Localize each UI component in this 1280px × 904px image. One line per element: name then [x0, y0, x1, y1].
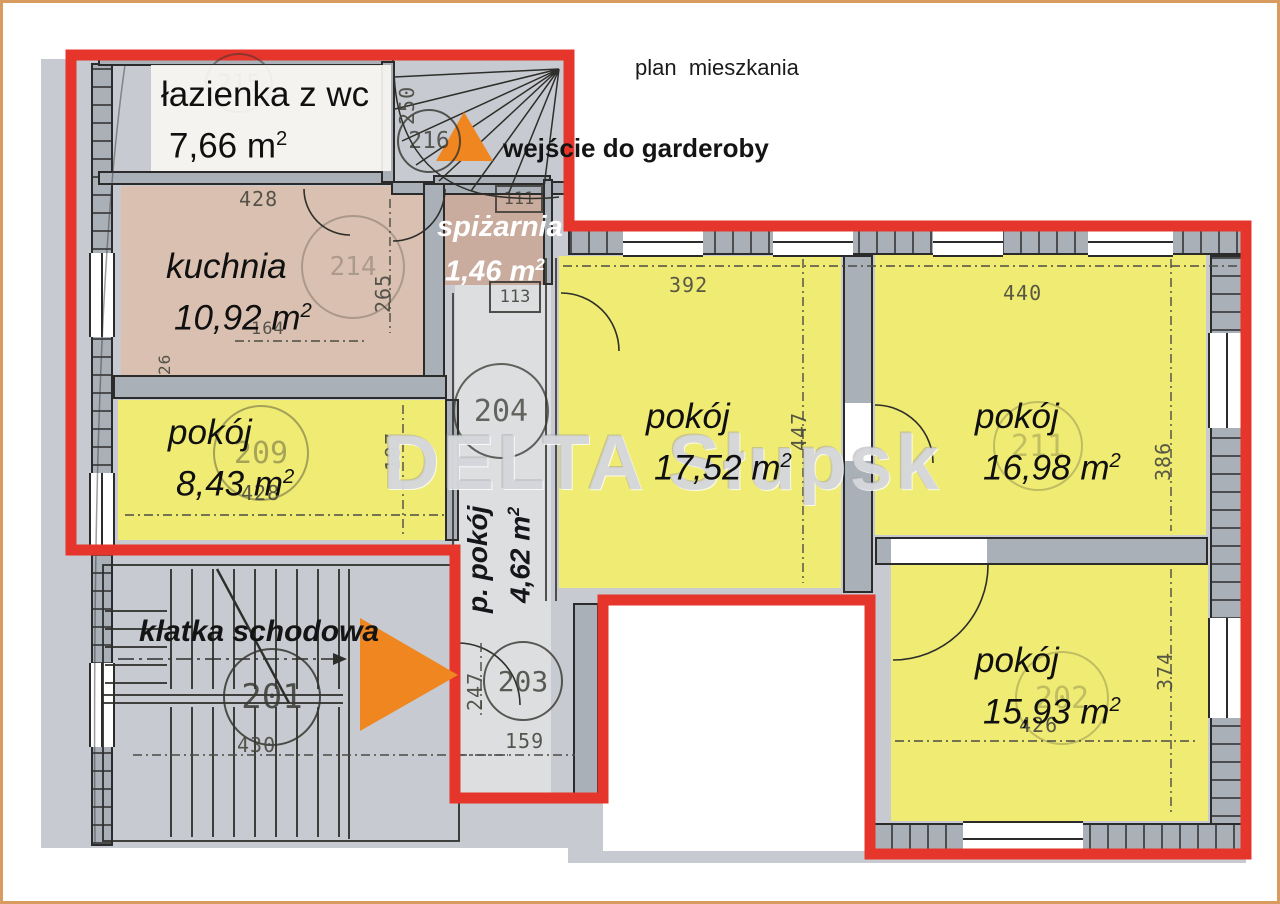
room-name-spizarnia: spiżarnia	[437, 209, 563, 246]
room-area-spizarnia: 1,46 m2	[437, 246, 563, 291]
room-name-lazienka: łazienka z wc	[161, 73, 369, 117]
floor-plan-canvas: 215 216 214 209 204 201 203 211 202 111 …	[0, 0, 1280, 904]
room-label-pokoj-1698: pokój 16,98 m2	[975, 395, 1121, 491]
room-label-kuchnia: kuchnia 10,92 m2	[166, 245, 312, 341]
window-left-3	[89, 663, 115, 747]
wall-bath-bottom	[98, 171, 394, 185]
window-top-3	[933, 227, 1003, 257]
window-left-2	[89, 473, 115, 553]
dim-kuchnia-right: 265	[371, 274, 395, 313]
wall-kuchnia-bottom	[113, 375, 447, 399]
wardrobe-entrance-label: wejście do garderoby	[503, 133, 769, 164]
room-area-pokoj-1698: 16,98 m2	[975, 439, 1121, 491]
room-label-pokoj-1752: pokój 17,52 m2	[646, 395, 792, 491]
staircase-label: klatka schodowa	[139, 615, 379, 649]
room-name-pokoj-1593: pokój	[975, 639, 1121, 683]
room-number-201-text: 201	[241, 677, 302, 717]
dim-kuchnia-top: 428	[239, 187, 278, 211]
room-area-lazienka: 7,66 m2	[161, 117, 369, 169]
window-top-2	[773, 227, 853, 257]
door-gap-1593	[891, 539, 987, 563]
room-label-pokoj-1593: pokój 15,93 m2	[975, 639, 1121, 735]
window-top-1	[623, 227, 703, 257]
room-name-przedpokoj: p. pokój	[460, 373, 496, 613]
plan-cutout	[603, 603, 868, 851]
room-label-spizarnia: spiżarnia 1,46 m2	[437, 209, 563, 291]
window-right-1	[1208, 333, 1246, 428]
dim-pokoj-16-right: 386	[1151, 442, 1175, 481]
room-name-pokoj-1698: pokój	[975, 395, 1121, 439]
room-area-kuchnia: 10,92 m2	[166, 289, 312, 341]
room-label-lazienka: łazienka z wc 7,66 m2	[161, 73, 369, 169]
room-name-pokoj-1752: pokój	[646, 395, 792, 439]
dim-stairs-top: 250	[395, 86, 419, 125]
dim-przedpokoj-bottom: 159	[505, 729, 544, 753]
window-bottom-1	[963, 821, 1083, 857]
wall-corridor-cutout	[573, 603, 599, 798]
window-right-2	[1208, 618, 1246, 718]
room-number-201: 201	[223, 648, 321, 746]
room-area-pokoj-1593: 15,93 m2	[975, 683, 1121, 735]
room-label-przedpokoj: p. pokój 4,62 m2	[460, 373, 540, 613]
wall-spizarnia-top	[433, 175, 551, 185]
room-area-przedpokoj: 4,62 m2	[496, 373, 538, 613]
room-number-203-text: 203	[498, 665, 549, 698]
dim-pokoj-15-right: 374	[1153, 652, 1177, 691]
room-name-pokoj-843: pokój	[168, 411, 294, 455]
window-top-4	[1088, 227, 1173, 257]
room-area-pokoj-843: 8,43 m2	[168, 455, 294, 507]
window-left-1	[89, 253, 115, 337]
room-area-pokoj-1752: 17,52 m2	[646, 439, 792, 491]
room-label-pokoj-843: pokój 8,43 m2	[168, 411, 294, 507]
dim-pokoj-17-top: 392	[669, 273, 708, 297]
dim-kuchnia-small: 26	[155, 354, 174, 375]
room-number-203: 203	[483, 641, 563, 721]
room-name-kuchnia: kuchnia	[166, 245, 312, 289]
room-number-216-text: 216	[408, 128, 450, 154]
dim-pokoj-16-top: 440	[1003, 281, 1042, 305]
room-number-214-text: 214	[330, 252, 377, 282]
dim-przedpokoj-left: 247	[463, 672, 487, 711]
dim-stairs-bottom: 430	[237, 733, 276, 757]
page-title: plan mieszkania	[635, 55, 799, 81]
room-number-111-text: 111	[504, 189, 535, 209]
